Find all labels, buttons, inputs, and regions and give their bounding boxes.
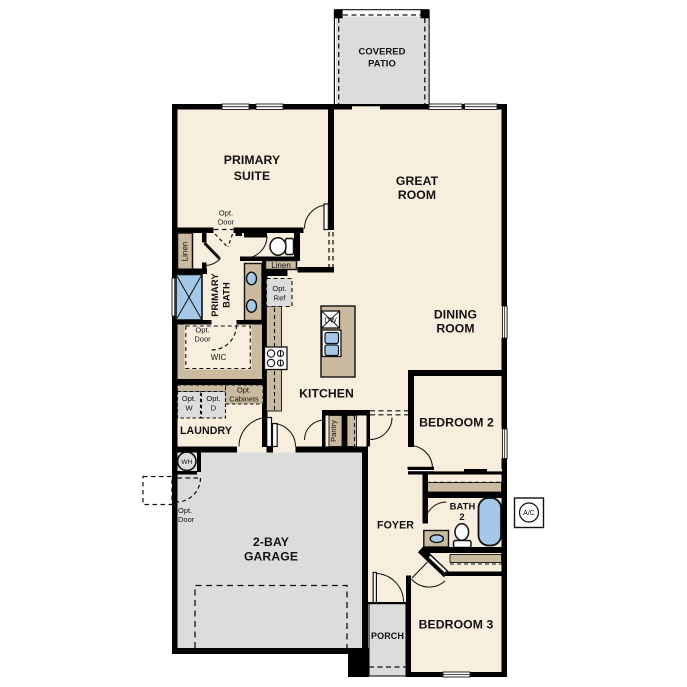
svg-text:KITCHEN: KITCHEN	[299, 387, 354, 401]
svg-text:PRIMARY: PRIMARY	[209, 273, 220, 317]
svg-text:Opt.: Opt.	[178, 506, 192, 515]
svg-text:Door: Door	[194, 335, 211, 344]
svg-text:PATIO: PATIO	[368, 58, 396, 69]
svg-text:LAUNDRY: LAUNDRY	[180, 425, 232, 437]
svg-text:Pantry: Pantry	[329, 420, 338, 442]
svg-text:Opt.: Opt.	[272, 284, 286, 293]
svg-text:COVERED: COVERED	[358, 46, 405, 57]
svg-text:SUITE: SUITE	[234, 169, 270, 183]
svg-text:Linen: Linen	[181, 242, 190, 262]
svg-text:Opt.: Opt.	[237, 386, 251, 395]
svg-text:WIC: WIC	[211, 353, 227, 362]
svg-text:2-BAY: 2-BAY	[253, 535, 289, 549]
svg-text:D: D	[211, 404, 217, 413]
svg-text:Linen: Linen	[271, 261, 291, 270]
svg-text:Door: Door	[178, 515, 195, 524]
svg-text:DW: DW	[324, 316, 337, 325]
svg-text:DINING: DINING	[434, 308, 477, 322]
svg-text:Opt.: Opt.	[182, 394, 196, 403]
svg-text:Opt.: Opt.	[195, 326, 209, 335]
svg-text:A/C: A/C	[523, 510, 535, 517]
svg-text:GARAGE: GARAGE	[244, 550, 298, 564]
svg-text:PORCH: PORCH	[371, 631, 404, 641]
svg-text:GREAT: GREAT	[396, 174, 439, 188]
svg-text:BATH: BATH	[221, 282, 232, 308]
svg-text:ROOM: ROOM	[398, 188, 436, 202]
svg-text:BEDROOM 3: BEDROOM 3	[419, 618, 494, 632]
svg-text:FOYER: FOYER	[377, 520, 414, 532]
svg-text:PRIMARY: PRIMARY	[224, 153, 280, 167]
svg-text:ROOM: ROOM	[436, 322, 474, 336]
svg-text:WH: WH	[181, 459, 192, 466]
svg-text:Door: Door	[218, 218, 235, 227]
svg-text:BEDROOM 2: BEDROOM 2	[419, 416, 494, 430]
svg-text:Opt.: Opt.	[219, 209, 233, 218]
svg-text:Ref: Ref	[274, 294, 287, 303]
svg-text:Opt.: Opt.	[206, 394, 220, 403]
svg-text:Cabinets: Cabinets	[229, 395, 259, 404]
svg-text:2: 2	[459, 511, 464, 522]
svg-text:W: W	[185, 404, 193, 413]
